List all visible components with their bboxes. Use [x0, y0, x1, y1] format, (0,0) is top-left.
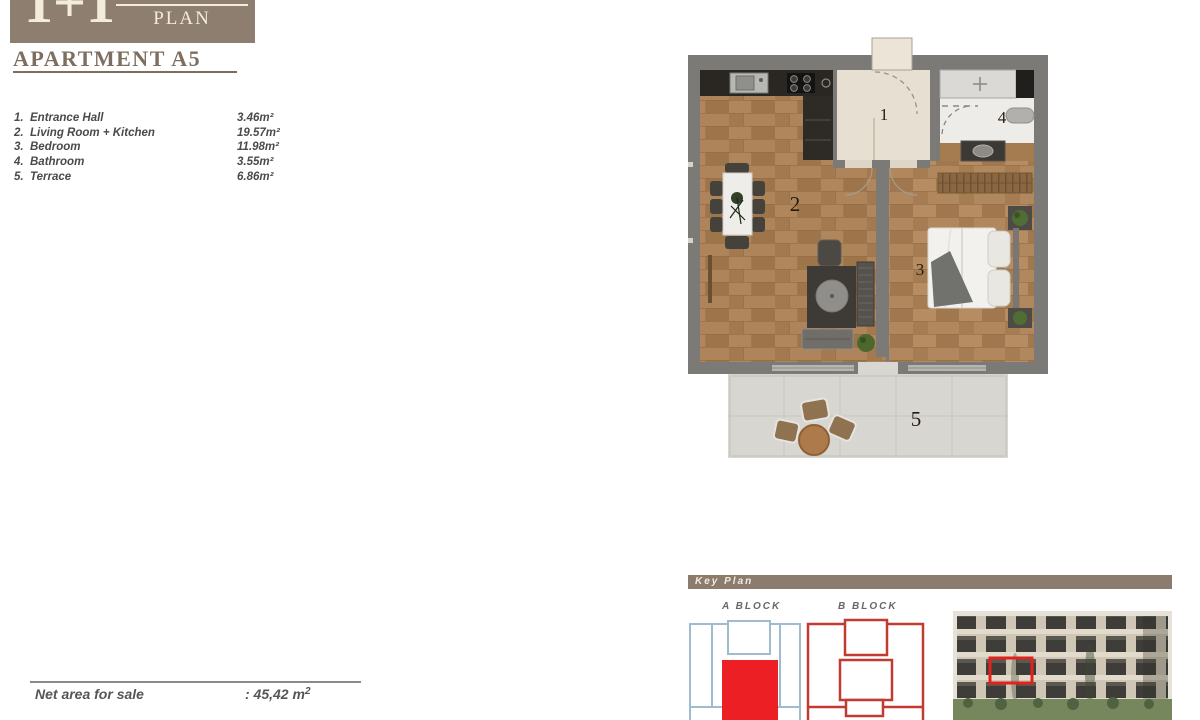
room-number: 1. — [14, 112, 30, 124]
kitchen-counter-column — [803, 96, 833, 160]
block-b-label: B BLOCK — [838, 601, 898, 612]
brand-logo: 1+1 APARTMENT PLAN — [10, 0, 255, 43]
net-area-label: Net area for sale — [35, 686, 144, 702]
room-row: 2. Living Room + Kitchen 19.57m² — [14, 126, 334, 141]
room-row: 4. Bathroom 3.55m² — [14, 155, 334, 170]
keyplan-title: Key Plan — [695, 576, 753, 587]
room-label-5: 5 — [911, 407, 922, 431]
title-underline — [13, 71, 237, 73]
net-area-line — [30, 681, 361, 683]
room-area: 3.55m² — [237, 156, 334, 168]
pillow — [988, 270, 1010, 306]
logo-plan-word: PLAN — [116, 6, 248, 30]
block-a-label: A BLOCK — [722, 601, 781, 612]
entrance-door-recess — [872, 38, 912, 70]
room-area: 3.46m² — [237, 112, 334, 124]
bathroom: 4 — [940, 70, 1034, 161]
grass — [953, 697, 1172, 720]
room-name: Entrance Hall — [30, 112, 237, 124]
floor-plan-svg: 5 — [683, 48, 1053, 463]
room-number: 2. — [14, 127, 30, 139]
room-area: 11.98m² — [237, 141, 334, 153]
room-name: Bathroom — [30, 156, 237, 168]
terrace: 5 — [728, 374, 1008, 458]
pillow — [988, 231, 1010, 267]
keyplan-svg — [683, 613, 935, 720]
apartment-highlight — [722, 660, 778, 720]
room-list: 1. Entrance Hall 3.46m² 2. Living Room +… — [14, 111, 334, 184]
room-label-2: 2 — [790, 192, 801, 216]
room-label-4: 4 — [998, 108, 1007, 127]
room-number: 5. — [14, 171, 30, 183]
room-number: 4. — [14, 156, 30, 168]
keyplan-bar: Key Plan — [688, 575, 1172, 589]
room-name: Living Room + Kitchen — [30, 127, 237, 139]
chaise-sofa — [857, 262, 874, 326]
room-name: Bedroom — [30, 141, 237, 153]
room-area: 19.57m² — [237, 127, 334, 139]
net-area-superscript: 2 — [305, 686, 311, 697]
room-row: 5. Terrace 6.86m² — [14, 169, 334, 184]
room-label-1: 1 — [880, 105, 889, 124]
room-row: 3. Bedroom 11.98m² — [14, 140, 334, 155]
tree — [1085, 643, 1095, 703]
logo-wordmark: APARTMENT PLAN — [116, 0, 248, 30]
radiator — [708, 255, 712, 303]
toilet — [1006, 108, 1034, 123]
net-area-value: : 45,42 m2 — [245, 686, 311, 702]
terrace-table — [799, 425, 829, 455]
room-row: 1. Entrance Hall 3.46m² — [14, 111, 334, 126]
room-label-3: 3 — [916, 260, 925, 279]
bathroom-cabinet — [1016, 70, 1034, 98]
logo-number: 1+1 — [24, 0, 115, 32]
plant — [857, 334, 875, 352]
page-root: 1+1 APARTMENT PLAN APARTMENT A5 1. Entra… — [0, 0, 1200, 720]
block-b-diagram — [808, 620, 923, 720]
room-name: Terrace — [30, 171, 237, 183]
armchair — [818, 240, 841, 266]
room-area: 6.86m² — [237, 171, 334, 183]
tree — [1011, 653, 1019, 701]
page-title: APARTMENT A5 — [13, 46, 201, 72]
building-photo-svg — [953, 611, 1172, 720]
room-number: 3. — [14, 141, 30, 153]
